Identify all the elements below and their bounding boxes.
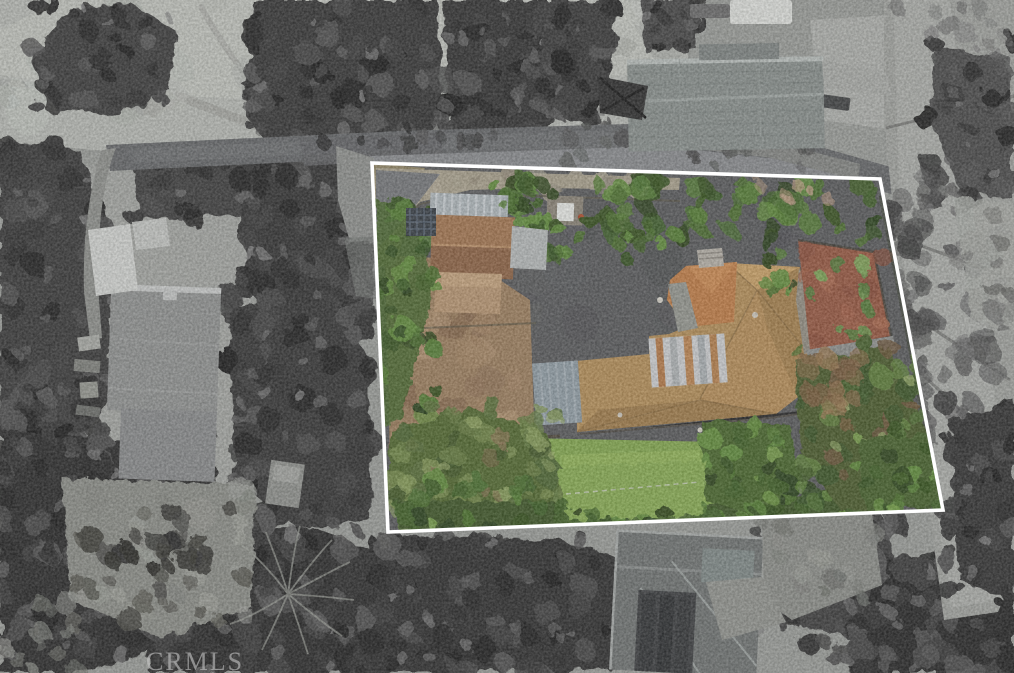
svg-text:CRMLS: CRMLS (146, 647, 244, 673)
